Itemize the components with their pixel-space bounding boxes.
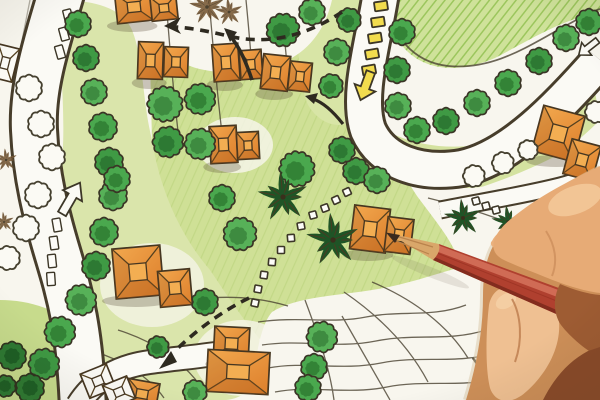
photo-vignette (0, 0, 600, 400)
site-plan-photo: Landscape design site plan — colored pen… (0, 0, 600, 400)
site-plan-drawing: Landscape design site plan — colored pen… (0, 0, 600, 400)
